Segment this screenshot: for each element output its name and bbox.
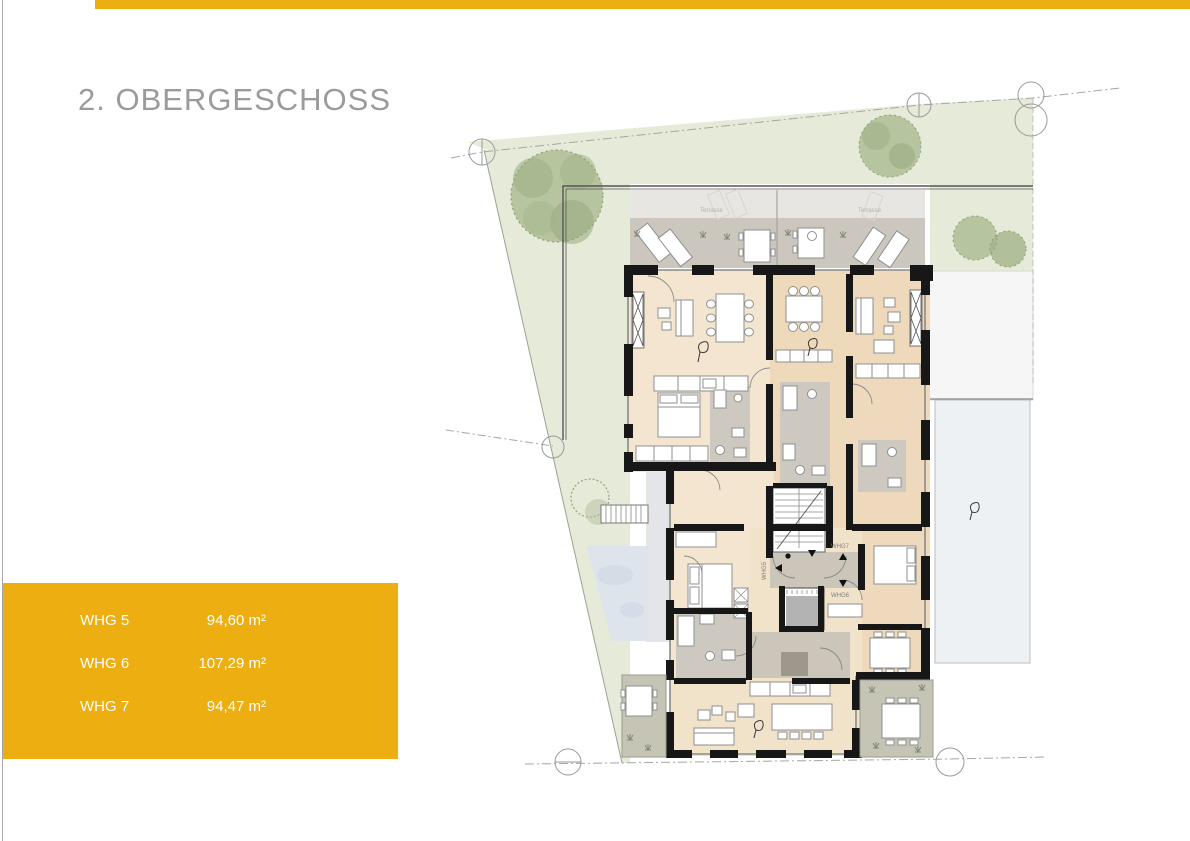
tree-top-right <box>859 115 921 177</box>
terrasse-label-right: Terrasse <box>858 208 882 214</box>
label-whg7: WHG7 <box>831 544 850 550</box>
elevator <box>780 588 824 630</box>
exterior-stairs <box>601 505 648 523</box>
stairwell <box>773 488 825 559</box>
label-whg6: WHG6 <box>831 593 850 599</box>
terrasse-label-left: Terrasse <box>700 208 724 214</box>
floor-plan: Terrasse Terrasse <box>0 0 1190 841</box>
top-terraces: Terrasse Terrasse <box>630 189 925 268</box>
label-whg5: WHG5 <box>762 561 768 580</box>
